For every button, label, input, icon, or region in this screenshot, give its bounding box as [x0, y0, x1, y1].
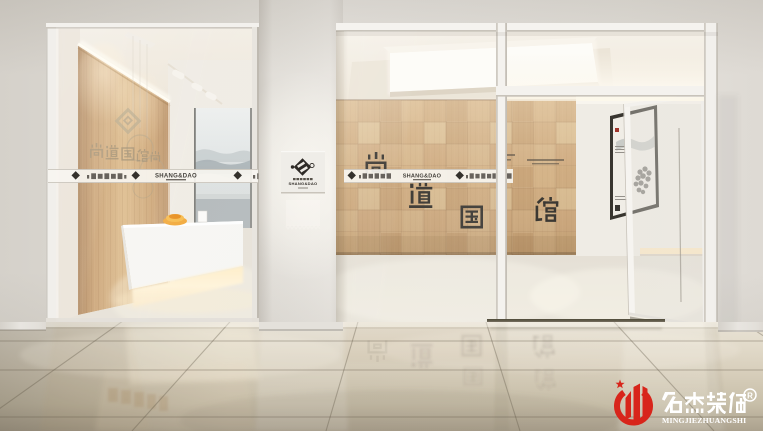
- svg-text:SHANG&DAO: SHANG&DAO: [155, 174, 197, 180]
- svg-text:R: R: [747, 392, 753, 401]
- svg-text:SHANG&DAO: SHANG&DAO: [403, 174, 442, 180]
- svg-text:SHANG&DAO: SHANG&DAO: [289, 181, 318, 186]
- svg-text:MINGJIEZHUANGSHI: MINGJIEZHUANGSHI: [662, 416, 746, 425]
